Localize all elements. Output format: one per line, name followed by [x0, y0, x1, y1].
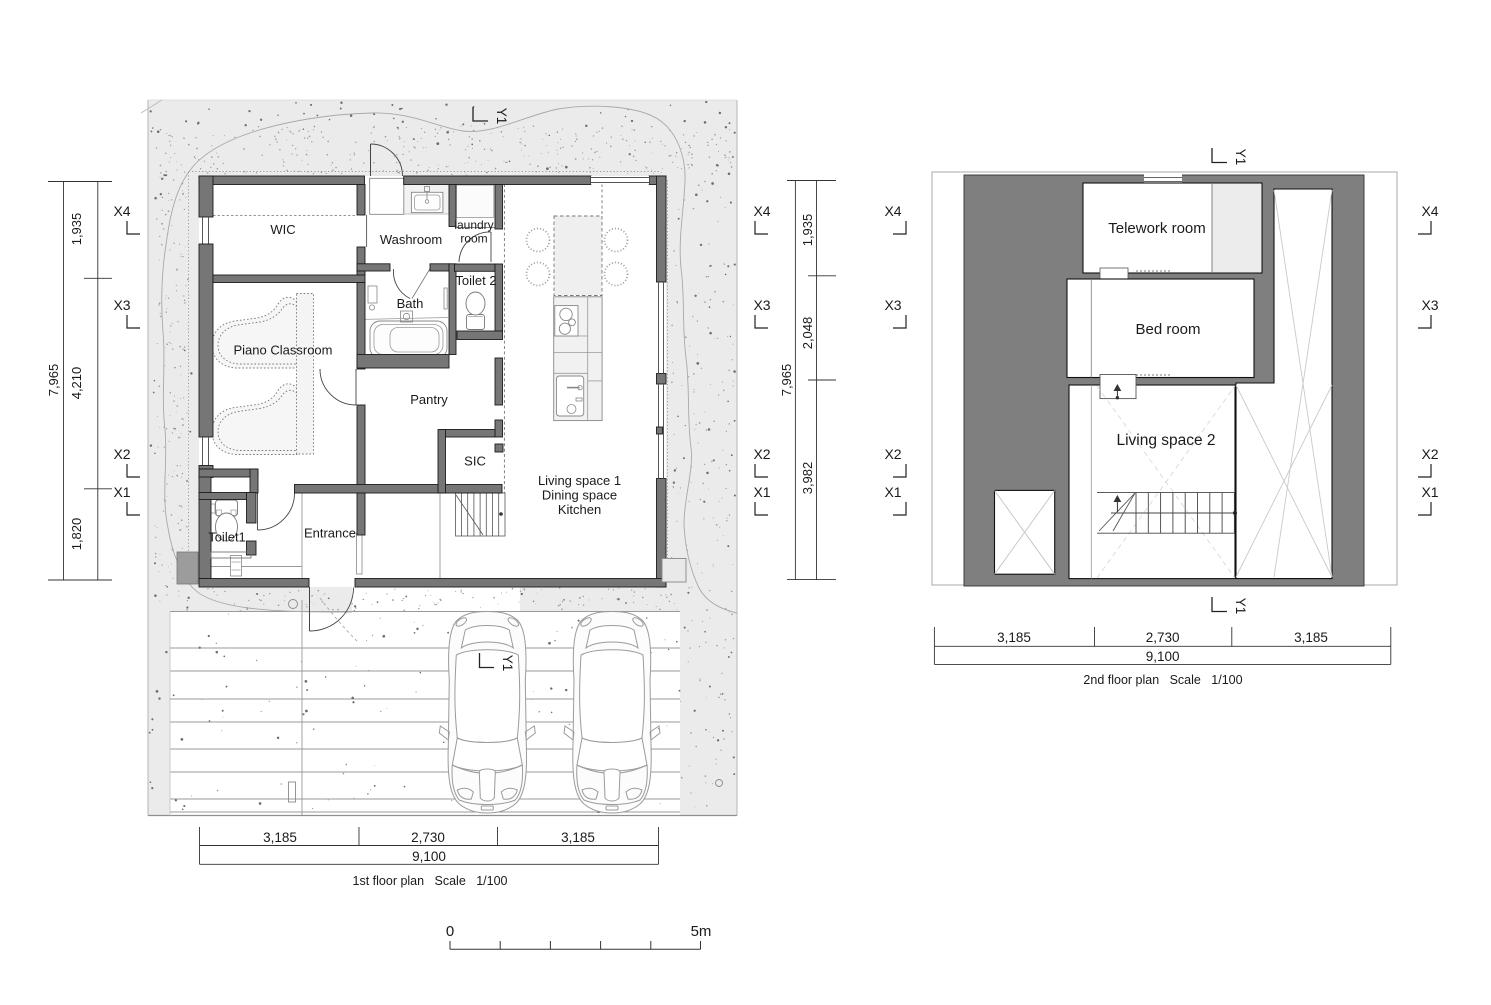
svg-text:3,982: 3,982 [800, 462, 815, 495]
svg-text:X4: X4 [753, 203, 770, 219]
svg-text:5m: 5m [691, 923, 712, 940]
svg-text:X4: X4 [113, 203, 130, 219]
svg-text:1,820: 1,820 [69, 518, 84, 551]
svg-text:2,048: 2,048 [800, 317, 815, 350]
svg-text:Piano Classroom: Piano Classroom [234, 343, 333, 358]
svg-text:X4: X4 [884, 203, 901, 219]
svg-text:Y1: Y1 [1233, 598, 1248, 615]
svg-text:7,965: 7,965 [46, 364, 61, 397]
svg-text:7,965: 7,965 [779, 364, 794, 397]
svg-text:X2: X2 [1421, 446, 1438, 462]
svg-text:0: 0 [446, 923, 454, 940]
svg-text:laundry: laundry [454, 218, 493, 232]
svg-text:4,210: 4,210 [69, 367, 84, 400]
svg-text:WIC: WIC [270, 222, 295, 237]
svg-text:Pantry: Pantry [410, 392, 448, 407]
svg-text:Y1: Y1 [494, 108, 509, 125]
svg-text:2nd floor plan Scale 1/100: 2nd floor plan Scale 1/100 [1083, 673, 1242, 687]
svg-text:Y1: Y1 [500, 655, 515, 672]
svg-text:X1: X1 [1421, 484, 1438, 500]
svg-text:X2: X2 [884, 446, 901, 462]
svg-text:X2: X2 [113, 446, 130, 462]
svg-text:1st floor plan Scale 1/100: 1st floor plan Scale 1/100 [353, 874, 508, 888]
svg-text:Living space 2: Living space 2 [1116, 432, 1215, 449]
svg-text:X3: X3 [113, 297, 130, 313]
svg-text:Y1: Y1 [1233, 149, 1248, 166]
svg-text:X1: X1 [884, 484, 901, 500]
svg-text:X1: X1 [753, 484, 770, 500]
svg-text:X4: X4 [1421, 203, 1438, 219]
svg-text:room: room [460, 232, 487, 246]
svg-text:9,100: 9,100 [412, 849, 446, 864]
svg-text:Dining space: Dining space [542, 488, 617, 503]
svg-text:Bath: Bath [397, 296, 424, 311]
svg-text:1,935: 1,935 [800, 214, 815, 247]
svg-text:Entrance: Entrance [304, 526, 356, 541]
svg-text:X3: X3 [884, 297, 901, 313]
svg-text:Toilet1: Toilet1 [208, 530, 246, 545]
svg-text:3,185: 3,185 [997, 630, 1031, 645]
svg-text:X3: X3 [1421, 297, 1438, 313]
svg-text:1,935: 1,935 [69, 213, 84, 246]
svg-text:Washroom: Washroom [380, 232, 442, 247]
svg-text:X3: X3 [753, 297, 770, 313]
svg-text:X1: X1 [113, 484, 130, 500]
svg-text:3,185: 3,185 [561, 830, 595, 845]
svg-text:2,730: 2,730 [411, 830, 445, 845]
svg-text:2,730: 2,730 [1146, 630, 1180, 645]
svg-text:3,185: 3,185 [1294, 630, 1328, 645]
svg-text:Kitchen: Kitchen [558, 502, 601, 517]
svg-text:Telework room: Telework room [1108, 220, 1206, 237]
svg-text:3,185: 3,185 [263, 830, 297, 845]
svg-text:Bed room: Bed room [1135, 321, 1200, 338]
svg-text:9,100: 9,100 [1146, 649, 1180, 664]
svg-text:SIC: SIC [464, 454, 486, 469]
svg-text:X2: X2 [753, 446, 770, 462]
svg-text:Toilet 2: Toilet 2 [455, 273, 496, 288]
svg-text:Living space 1: Living space 1 [538, 473, 621, 488]
